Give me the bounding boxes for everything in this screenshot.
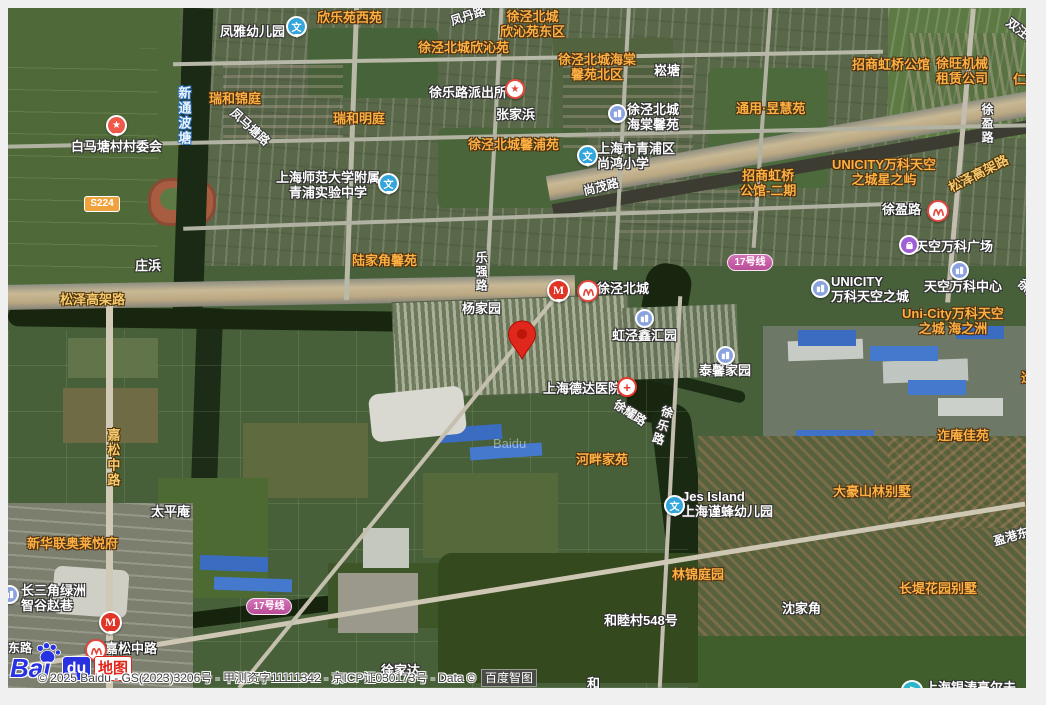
label-taipingan: 太平庵 xyxy=(151,504,190,519)
label-zean-partial: 迮 xyxy=(1021,370,1026,385)
label-taixin-jiayuan: 泰馨家园 xyxy=(699,363,751,378)
label-xqbc-haitang-north: 徐泾北城海棠馨苑北区 xyxy=(558,52,636,83)
pin-police-station[interactable]: ★ xyxy=(505,79,525,99)
label-taixin-jiayuan-line: 泰馨家园 xyxy=(699,363,751,378)
label-ruihe-mingting-line: 瑞和明庭 xyxy=(333,111,385,126)
badge-metro-line17-south: 17号线 xyxy=(246,598,292,615)
label-hongjing-xinhuiyuan: 虹泾鑫汇园 xyxy=(612,328,677,343)
label-fengya-kindergarten-line: 凤雅幼儿园 xyxy=(220,24,285,39)
label-changsanjiao-zhigu-line: 长三角绿洲 xyxy=(21,583,86,598)
label-lujiajiao-xinyuan: 陆家角馨苑 xyxy=(352,253,417,268)
label-deda-hospital-line: 上海德达医院 xyxy=(543,381,621,396)
label-zean-partial-line: 迮 xyxy=(1021,370,1026,385)
school-wen-glyph: 文 xyxy=(670,498,680,513)
label-baimatang-village-committee-line: 白马塘村村委会 xyxy=(71,139,162,154)
terrain-patch xyxy=(798,330,856,346)
label-leqiang-road: 乐强路 xyxy=(474,251,488,293)
label-zhuangbang: 庄浜 xyxy=(135,258,161,273)
label-xinleyuan-west-line: 欣乐苑西苑 xyxy=(317,10,382,25)
label-xuwang-machinery-line: 租赁公司 xyxy=(936,71,988,86)
label-changsanjiao-zhigu-line: 智谷赵巷 xyxy=(21,598,86,613)
terrain-patch xyxy=(214,577,292,593)
badge-provincial-road-s224: S224 xyxy=(84,196,120,212)
label-shanghong-primary-school-line: 尚鸿小学 xyxy=(597,156,675,171)
label-hemucun-548-line: 和睦村548号 xyxy=(604,613,678,628)
label-unicity-star-isle-line: UNICITY万科天空 xyxy=(832,157,936,172)
label-changdi-garden-villas-line: 长堤花园别墅 xyxy=(899,581,977,596)
pin-metro-xujing-north-city[interactable] xyxy=(577,280,599,302)
terrain-patch xyxy=(68,338,158,378)
badge-metro-line17-north: 17号线 xyxy=(727,254,773,271)
shopping-bag-icon xyxy=(904,240,915,251)
terrain-patch xyxy=(363,528,409,568)
label-zean-jiayuan: 迮庵佳苑 xyxy=(937,428,989,443)
label-xujing-road-partial: 徐泾 xyxy=(1015,276,1026,303)
pin-jes-island-school[interactable]: 文 xyxy=(664,495,685,516)
label-unicity-haizhizhou-line: 之城 海之洲 xyxy=(902,321,1004,336)
label-ruihe-jinting: 瑞和锦庭 xyxy=(209,91,261,106)
pin-mcdonalds-xujing[interactable]: M xyxy=(547,279,570,302)
pin-fengya-school[interactable]: 文 xyxy=(286,16,307,37)
label-xqbc-haitang-north-line: 徐泾北城海棠 xyxy=(558,52,636,67)
satellite-map-canvas[interactable]: Baidu 凤雅幼儿园欣乐苑西苑凤丹路徐泾北城欣沁苑东区徐泾北城欣沁苑徐泾北城海… xyxy=(8,8,1026,688)
label-shenjiajiao-line: 沈家角 xyxy=(782,601,821,616)
label-lujiajiao-xinyuan-line: 陆家角馨苑 xyxy=(352,253,417,268)
label-unicity-star-isle-line: 之城星之屿 xyxy=(832,172,936,187)
label-xujing-north-city-station: 徐泾北城 xyxy=(597,281,649,296)
label-xuwang-machinery: 徐旺机械租赁公司 xyxy=(936,56,988,87)
label-songtang: 崧塘 xyxy=(654,63,680,78)
map-copyright-attribution: © 2025 Baidu - GS(2023)3206号 - 甲测资字11111… xyxy=(38,669,537,686)
baidu-smart-map-brand-box: 百度智图 xyxy=(481,669,537,687)
pin-haitang-residence[interactable] xyxy=(608,104,627,123)
mcdonalds-m-glyph: M xyxy=(105,615,116,630)
school-wen-glyph: 文 xyxy=(583,148,593,163)
label-unicity-tiankong-line: 万科天空之城 xyxy=(831,289,909,304)
label-jes-island-kindergarten-line: 上海谨蜂幼儿园 xyxy=(682,504,773,519)
label-unicity-star-isle: UNICITY万科天空之城星之屿 xyxy=(832,157,936,188)
terrain-patch xyxy=(368,385,467,443)
label-he-partial-line: 和 xyxy=(587,676,600,688)
label-shenjiajiao: 沈家角 xyxy=(782,601,821,616)
label-zhaoshang-hongqiao-phase2: 招商虹桥公馆-二期 xyxy=(740,168,796,199)
label-dahao-villas-line: 大豪山林别墅 xyxy=(833,484,911,499)
building-icon xyxy=(612,108,623,119)
label-xqbc-haitang-xinyuan-line: 徐泾北城 xyxy=(627,102,679,117)
pin-deda-hospital[interactable]: + xyxy=(617,377,637,397)
label-xujing-road-partial-line: 徐泾 xyxy=(1015,276,1026,303)
label-xqbc-xinpuyuan: 徐泾北城馨浦苑 xyxy=(468,137,559,152)
shanghai-metro-icon xyxy=(932,205,945,218)
label-taipingan-line: 太平庵 xyxy=(151,504,190,519)
label-fengya-kindergarten: 凤雅幼儿园 xyxy=(220,24,285,39)
golf-flag-glyph: ⚑ xyxy=(908,685,916,689)
label-baimatang-village-committee: 白马塘村村委会 xyxy=(71,139,162,154)
label-zhaoshang-hongqiao-line: 招商虹桥公馆 xyxy=(852,57,930,72)
label-xuying-road-station-line: 徐盈路 xyxy=(882,202,921,217)
terrain-patch xyxy=(200,555,268,572)
label-xqbc-xinpuyuan-line: 徐泾北城馨浦苑 xyxy=(468,137,559,152)
label-xqbc-xinqinyuan-east: 徐泾北城欣沁苑东区 xyxy=(500,9,565,40)
label-tiankong-wanke-center-line: 天空万科中心 xyxy=(924,279,1002,294)
label-zhaoshang-hongqiao-phase2-line: 公馆-二期 xyxy=(740,183,796,198)
label-zhaoshang-hongqiao: 招商虹桥公馆 xyxy=(852,57,930,72)
label-xintongbotang-river-line: 新通波塘 xyxy=(176,86,191,146)
label-xintongbotang-river: 新通波塘 xyxy=(176,86,191,146)
label-linjin-tingyuan-line: 林锦庭园 xyxy=(672,567,724,582)
label-shanghong-primary-school: 上海市青浦区尚鸿小学 xyxy=(597,141,675,172)
label-zhaoshang-hongqiao-phase2-line: 招商虹桥 xyxy=(740,168,796,183)
label-he-partial: 和 xyxy=(587,676,600,688)
mcdonalds-m-glyph: M xyxy=(553,283,564,298)
pin-normal-univ-school[interactable]: 文 xyxy=(378,173,399,194)
building-icon xyxy=(639,313,650,324)
label-hepan-jiayuan-line: 河畔家苑 xyxy=(576,452,628,467)
pin-wanke-center-building[interactable] xyxy=(950,261,969,280)
terrain-patch xyxy=(8,48,158,288)
label-ruihe-jinting-line: 瑞和锦庭 xyxy=(209,91,261,106)
label-zhangjiabang-line: 张家浜 xyxy=(496,107,535,122)
label-leqiang-road-line: 乐强路 xyxy=(474,251,488,293)
label-shanghong-primary-school-line: 上海市青浦区 xyxy=(597,141,675,156)
star-glyph: ★ xyxy=(112,120,121,131)
label-jes-island-kindergarten-line: Jes Island xyxy=(682,489,773,504)
label-changsanjiao-zhigu: 长三角绿洲智谷赵巷 xyxy=(21,583,86,614)
label-hemucun-548: 和睦村548号 xyxy=(604,613,678,628)
label-ruihe-mingting: 瑞和明庭 xyxy=(333,111,385,126)
label-xulelu-police-station-line: 徐乐路派出所 xyxy=(429,85,507,100)
label-hepan-jiayuan: 河畔家苑 xyxy=(576,452,628,467)
label-renheng-line: 仁恒 xyxy=(1013,72,1026,87)
label-xuying-road-station: 徐盈路 xyxy=(882,202,921,217)
building-icon xyxy=(815,283,826,294)
label-linjin-tingyuan: 林锦庭园 xyxy=(672,567,724,582)
label-tiankong-wanke-center: 天空万科中心 xyxy=(924,279,1002,294)
label-changdi-garden-villas: 长堤花园别墅 xyxy=(899,581,977,596)
label-yintao-golf-line: 上海银涛高尔夫 xyxy=(925,680,1016,688)
label-zhangjiabang: 张家浜 xyxy=(496,107,535,122)
label-zean-jiayuan-line: 迮庵佳苑 xyxy=(937,428,989,443)
label-songze-elevated-road-west: 松泽高架路 xyxy=(60,292,125,307)
building-icon xyxy=(954,265,965,276)
label-unicity-tiankong-line: UNICITY xyxy=(831,274,909,289)
red-pin-icon xyxy=(507,320,537,360)
terrain-patch xyxy=(938,398,1003,416)
baidu-tile-watermark: Baidu xyxy=(493,436,526,451)
terrain-patch xyxy=(908,380,966,395)
label-unicity-haizhizhou: Uni-City万科天空之城 海之洲 xyxy=(902,306,1004,337)
destination-marker-pin[interactable] xyxy=(507,320,537,365)
pin-hongjing-building[interactable] xyxy=(635,309,654,328)
terrain-patch xyxy=(870,346,938,361)
building-icon xyxy=(8,589,15,600)
label-dahao-villas: 大豪山林别墅 xyxy=(833,484,911,499)
label-xqbc-xinqinyuan-east-line: 徐泾北城 xyxy=(500,9,565,24)
label-xqbc-haitang-north-line: 馨苑北区 xyxy=(558,67,636,82)
label-xqbc-xinqinyuan-line: 徐泾北城欣沁苑 xyxy=(418,40,509,55)
baidu-paw-icon xyxy=(34,641,61,666)
pin-mcdonalds-jiasong[interactable]: M xyxy=(99,611,122,634)
school-wen-glyph: 文 xyxy=(384,176,394,191)
label-xinleyuan-west: 欣乐苑西苑 xyxy=(317,10,382,25)
label-shanghai-normal-univ-school-line: 上海师范大学附属 xyxy=(276,170,380,185)
label-xuying-road-line: 徐盈路 xyxy=(980,103,994,145)
pin-baimatang-committee[interactable]: ★ xyxy=(106,115,127,136)
pin-metro-xuying-road[interactable] xyxy=(927,200,949,222)
label-xulelu-police-station: 徐乐路派出所 xyxy=(429,85,507,100)
label-xujing-north-city-station-line: 徐泾北城 xyxy=(597,281,649,296)
label-songze-elevated-road-west-line: 松泽高架路 xyxy=(60,292,125,307)
label-tongyong-yuhuiyuan-line: 通用·昱慧苑 xyxy=(736,101,805,116)
label-shanghai-normal-univ-school-line: 青浦实验中学 xyxy=(276,185,380,200)
label-shanghai-normal-univ-school: 上海师范大学附属青浦实验中学 xyxy=(276,170,380,201)
label-deda-hospital: 上海德达医院 xyxy=(543,381,621,396)
label-xuwang-machinery-line: 徐旺机械 xyxy=(936,56,988,71)
label-xqbc-xinqinyuan-east-line: 欣沁苑东区 xyxy=(500,24,565,39)
hospital-cross-glyph: + xyxy=(623,381,631,394)
label-xuying-road: 徐盈路 xyxy=(980,103,994,145)
building-icon xyxy=(720,350,731,361)
label-yangjiayuan-line: 杨家园 xyxy=(462,301,501,316)
copyright-text: © 2025 Baidu - GS(2023)3206号 - 甲测资字11111… xyxy=(38,671,479,685)
label-xqbc-haitang-xinyuan: 徐泾北城海棠馨苑 xyxy=(627,102,679,133)
school-wen-glyph: 文 xyxy=(292,19,302,34)
label-jiasong-middle-road-line: 嘉松中路 xyxy=(105,428,120,488)
label-yangjiayuan: 杨家园 xyxy=(462,301,501,316)
label-tongyong-yuhuiyuan: 通用·昱慧苑 xyxy=(736,101,805,116)
pin-taixin-building[interactable] xyxy=(716,346,735,365)
pin-shanghong-school[interactable]: 文 xyxy=(577,145,598,166)
shanghai-metro-icon xyxy=(582,285,595,298)
pin-unicity-building[interactable] xyxy=(811,279,830,298)
label-jiasong-middle-road: 嘉松中路 xyxy=(105,428,120,488)
terrain-patch xyxy=(423,473,558,558)
label-renheng: 仁恒 xyxy=(1013,72,1026,87)
baidu-map-page: Baidu 凤雅幼儿园欣乐苑西苑凤丹路徐泾北城欣沁苑东区徐泾北城欣沁苑徐泾北城海… xyxy=(0,0,1046,705)
pin-wanke-plaza-mall[interactable] xyxy=(899,235,919,255)
label-tiankong-wanke-plaza-line: 天空万科广场 xyxy=(915,239,993,254)
label-yintao-golf: 上海银涛高尔夫 xyxy=(925,680,1016,688)
label-xinhualian-aolai-line: 新华联奥莱悦府 xyxy=(27,536,118,551)
label-xqbc-haitang-xinyuan-line: 海棠馨苑 xyxy=(627,117,679,132)
label-hongjing-xinhuiyuan-line: 虹泾鑫汇园 xyxy=(612,328,677,343)
label-jes-island-kindergarten: Jes Island上海谨蜂幼儿园 xyxy=(682,489,773,520)
label-songtang-line: 崧塘 xyxy=(654,63,680,78)
label-unicity-haizhizhou-line: Uni-City万科天空 xyxy=(902,306,1004,321)
label-xinhualian-aolai: 新华联奥莱悦府 xyxy=(27,536,118,551)
label-unicity-tiankong: UNICITY万科天空之城 xyxy=(831,274,909,305)
police-star-glyph: ★ xyxy=(511,84,520,95)
label-zhuangbang-line: 庄浜 xyxy=(135,258,161,273)
label-xqbc-xinqinyuan: 徐泾北城欣沁苑 xyxy=(418,40,509,55)
label-tiankong-wanke-plaza: 天空万科广场 xyxy=(915,239,993,254)
